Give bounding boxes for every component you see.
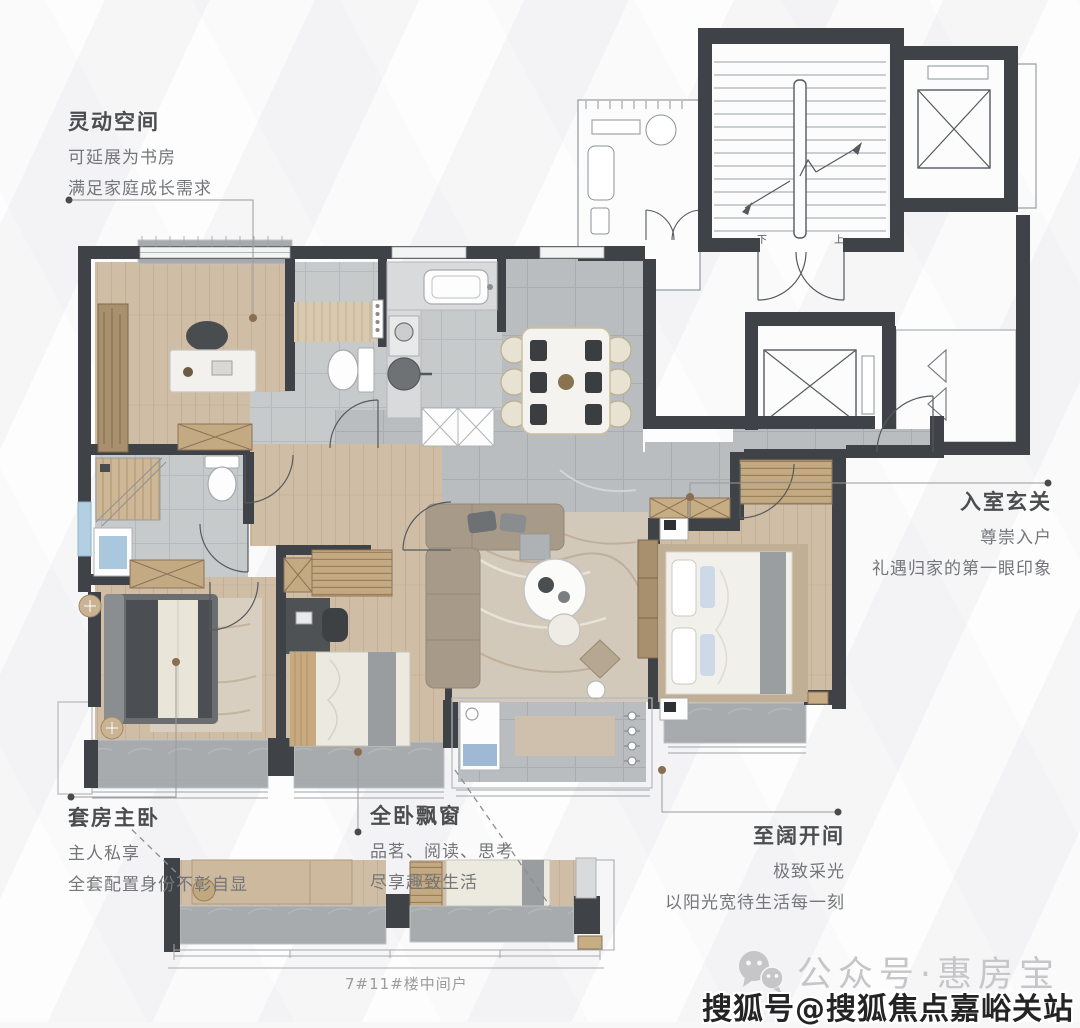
annotation-bay-window: 全卧飘窗 品茗、阅读、思考 尽享趣致生活 (370, 800, 514, 899)
annotation-title: 灵动空间 (68, 106, 212, 136)
annotation-line: 主人私享 (68, 839, 248, 870)
annotation-line: 品茗、阅读、思考 (370, 837, 514, 868)
bath-window (78, 502, 91, 556)
annotation-line: 极致采光 (665, 857, 845, 888)
plan-caption: 7#11#楼中间户 (345, 973, 468, 994)
annotation-flex-space: 灵动空间 可延展为书房 满足家庭成长需求 (68, 106, 212, 205)
dining-furniture (501, 328, 631, 434)
annotation-line: 可延展为书房 (68, 143, 212, 174)
stair-up-label: 上 (834, 234, 844, 246)
annotation-title: 全卧飘窗 (370, 800, 514, 830)
balcony-mat (515, 716, 615, 756)
annotation-line: 全套配置身份不彰自显 (68, 870, 248, 901)
bath-mat (99, 536, 127, 569)
stair-doors (758, 252, 844, 300)
hall-floor (250, 444, 442, 546)
annotation-line: 礼遇归家的第一眼印象 (872, 554, 1052, 585)
living-furniture (426, 504, 663, 702)
annotation-master-suite: 套房主卧 主人私享 全套配置身份不彰自显 (68, 802, 248, 901)
coffee-table (524, 559, 586, 621)
annotation-title: 入室玄关 (872, 486, 1052, 516)
annotation-line: 满足家庭成长需求 (68, 174, 212, 205)
wardrobe (740, 460, 832, 504)
annotation-title: 至阔开间 (665, 820, 845, 850)
annotation-line: 尽享趣致生活 (370, 868, 514, 899)
annotation-title: 套房主卧 (68, 802, 248, 832)
annotation-wide-bay: 至阔开间 极致采光 以阳光宽待生活每一刻 (665, 820, 845, 919)
annotation-line: 尊崇入户 (872, 523, 1052, 554)
annotation-line: 以阳光宽待生活每一刻 (665, 888, 845, 919)
sohu-watermark: 搜狐号@搜狐焦点嘉峪关站 (702, 984, 1074, 1028)
annotation-entry-foyer: 入室玄关 尊崇入户 礼遇归家的第一眼印象 (872, 486, 1052, 585)
tv-console (638, 540, 658, 658)
balcony (452, 698, 652, 788)
